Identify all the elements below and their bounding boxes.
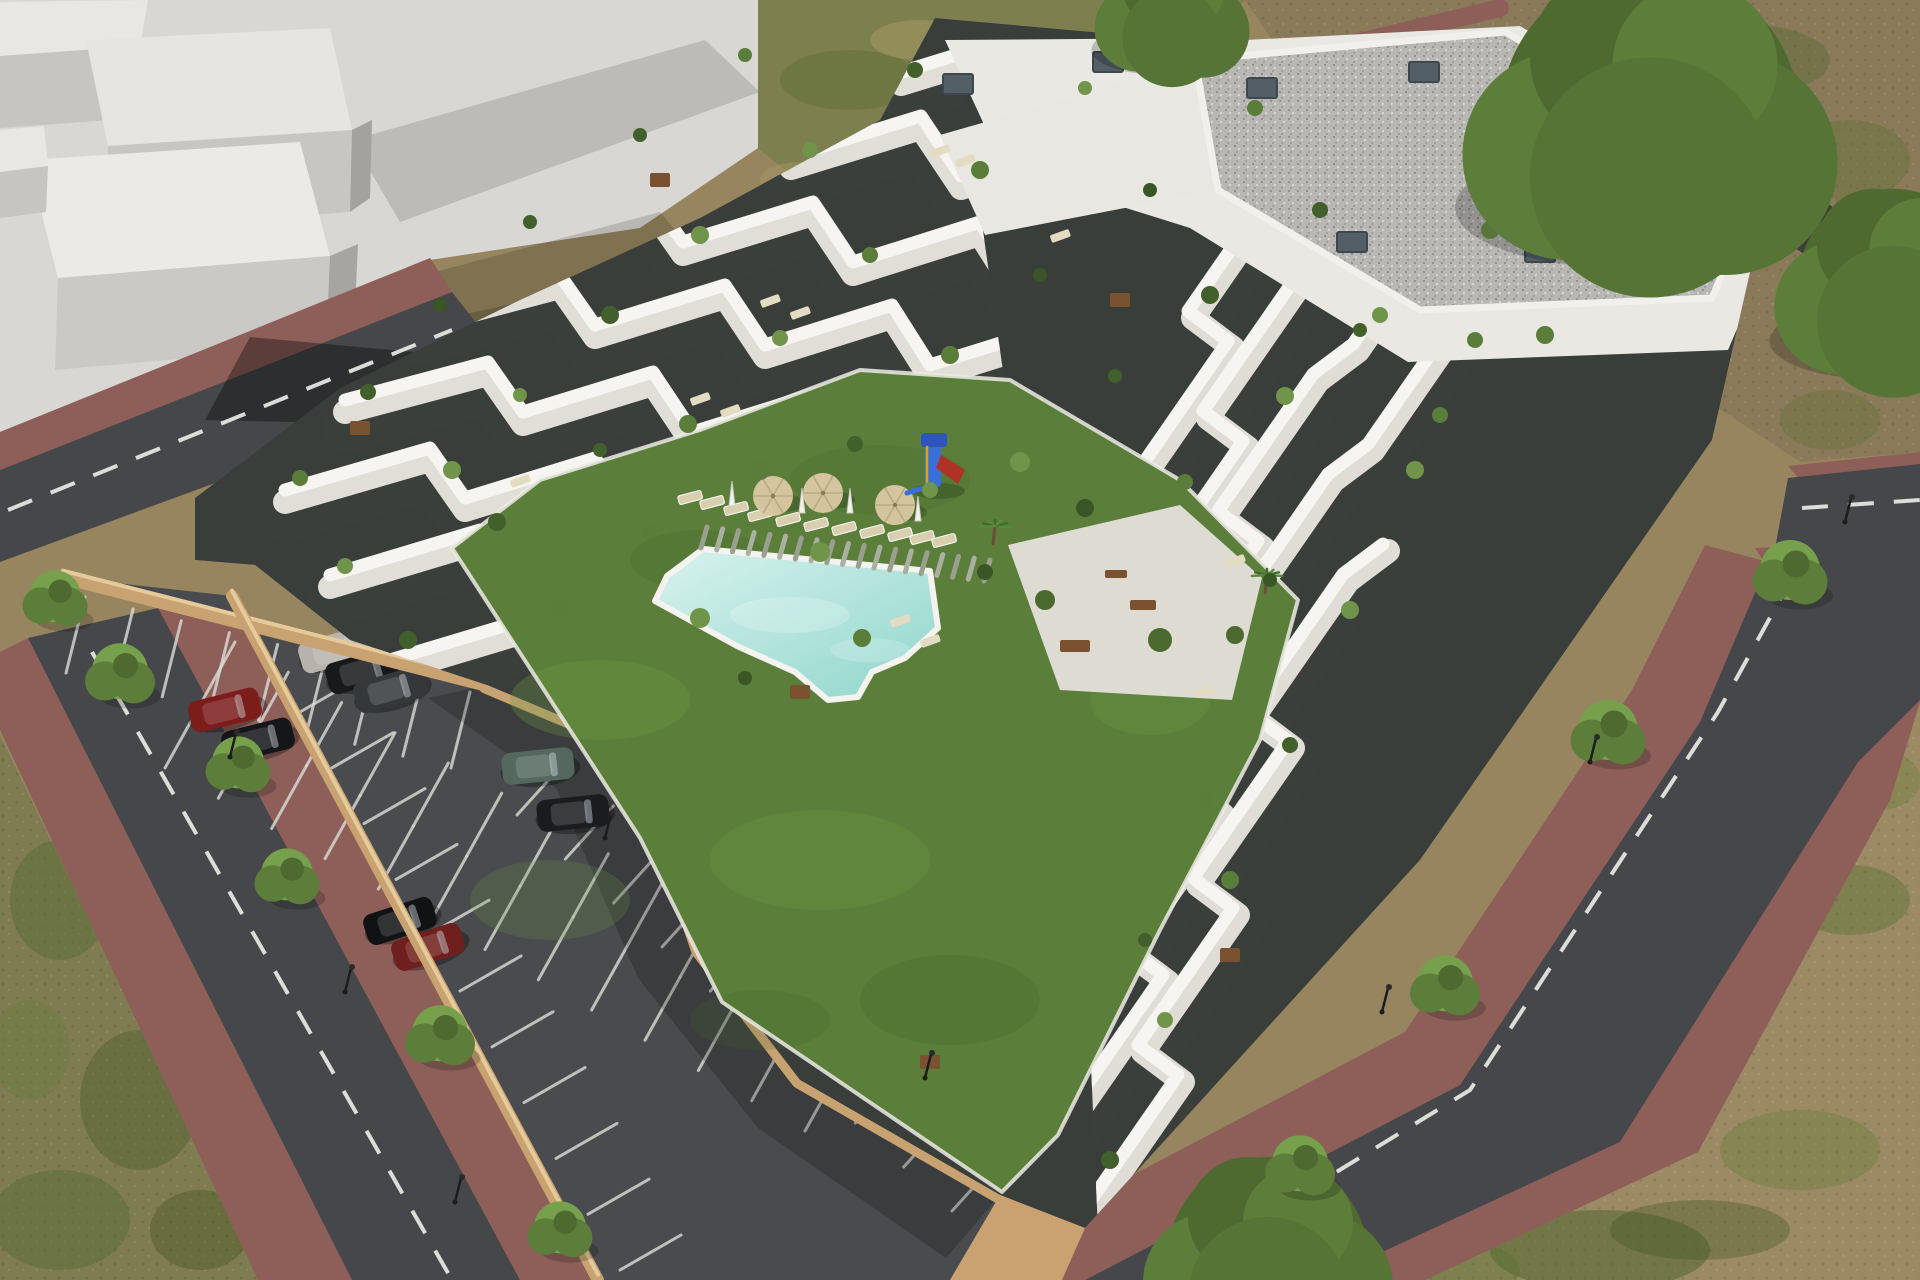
scrub-patch [1780,390,1880,450]
terrace-plant [922,482,938,498]
outdoor-table [1220,948,1240,962]
terrace-plant [1432,407,1448,423]
terrace-plant [1467,332,1483,348]
tree-canopy [433,1015,458,1040]
terrace-plant [1143,183,1157,197]
terrace-plant [593,443,607,457]
context-massing-block [0,126,48,218]
terrace-plant [643,525,657,539]
terrace-plant [971,161,989,179]
terrace-plant [1282,737,1298,753]
terrace-plant [488,513,506,531]
tree-canopy [281,858,304,881]
terrace-plant [853,629,871,647]
lamp-base [923,1076,928,1081]
terrace-plant [1078,81,1092,95]
terrace-plant [1341,601,1359,619]
tree-canopy [1293,1145,1318,1170]
parasol-hub [771,494,775,498]
terrace-plant [810,542,830,562]
terrace-plant [907,62,923,78]
terrace-plant [1010,452,1030,472]
scrub-patch [1720,1110,1880,1190]
tree-canopy [1438,965,1463,990]
bush [1226,626,1244,644]
terrace-plant [523,215,537,229]
palm-trunk [993,526,995,544]
terrace-plant [738,48,752,62]
outdoor-table [790,685,810,699]
terrace-plant [1201,286,1219,304]
car-roof [515,754,553,780]
parasol-hub [821,491,825,495]
wood-planter [1130,600,1156,610]
terrace-plant [690,608,710,628]
terrace-plant [337,558,353,574]
massing-block-face [350,120,372,212]
terrace-plant [1276,387,1294,405]
tree-canopy [1530,58,1770,298]
terrace-plant [1263,573,1277,587]
terrace-plant [601,306,619,324]
water-sparkle [730,597,850,633]
tree-canopy [113,653,138,678]
lawn-patch [710,810,930,910]
car-roof [550,801,588,827]
tree-canopy [232,746,255,769]
terrace-plant [633,128,647,142]
scene-canvas [0,0,1920,1280]
terrace-plant [443,461,461,479]
lamp-head [1594,734,1600,740]
roof-vent [1247,78,1277,98]
lamp-base [1380,1010,1385,1015]
terrace-plant [1221,871,1239,889]
massing-block-face [86,28,352,146]
massing-block-face [0,126,48,172]
terrace-plant [802,142,818,158]
lawn-patch [470,860,630,940]
lamp-head [609,810,615,816]
bush [1148,628,1172,652]
lamp-base [1588,760,1593,765]
terrace-plant [1076,499,1094,517]
terrace-plant [862,247,878,263]
terrace-plant [847,436,863,452]
terrace-plant [977,564,993,580]
palm-frond [980,526,995,527]
lamp-head [1849,494,1855,500]
terrace-plant [513,388,527,402]
roof-vent [943,74,973,94]
terrace-plant [1108,369,1122,383]
terrace-plant [552,600,568,616]
lawn-patch [690,990,830,1050]
lamp-base [603,836,608,841]
terrace-plant [1247,100,1263,116]
lawn-patch [860,955,1040,1045]
terrace-plant [1372,307,1388,323]
wood-planter [1060,640,1090,652]
lamp-head [929,1050,935,1056]
lamp-head [1386,984,1392,990]
lamp-base [453,1200,458,1205]
terrace-plant [1101,1151,1119,1169]
terrace-plant [738,671,752,685]
tree-canopy [1601,711,1628,738]
parasol-hub [893,503,897,507]
terrace-plant [1353,323,1367,337]
terrace-plant [679,415,697,433]
terrace-plant [433,298,447,312]
terrace-plant [1312,202,1328,218]
roof-vent [1337,232,1367,252]
terrace-plant [1406,461,1424,479]
lamp-head [234,729,240,735]
terrace-plant [292,470,308,486]
scrub-patch [1610,1200,1790,1260]
terrace-plant [1157,1012,1173,1028]
terrace-plant [941,346,959,364]
terrace-plant [399,631,417,649]
lawn-patch [510,660,690,740]
wood-planter [1105,570,1127,578]
terrace-plant [1177,474,1193,490]
terrace-plant [1138,933,1152,947]
lamp-head [349,964,355,970]
roof-vent [1409,62,1439,82]
terrace-plant [1536,326,1554,344]
bush [1035,590,1055,610]
play-canopy [921,433,947,447]
outdoor-table [350,421,370,435]
lamp-base [343,990,348,995]
massing-block-face [0,166,48,218]
terrace-plant [691,226,709,244]
terrace-plant [1197,792,1213,808]
aerial-render-scene [0,0,1920,1280]
terrace-plant [750,460,770,480]
terrace-plant [772,330,788,346]
tree-canopy [49,580,72,603]
terrace-plant [360,384,376,400]
tree-canopy [554,1211,577,1234]
terrace-plant [1033,268,1047,282]
massing-block-face [28,142,330,278]
lamp-base [228,755,233,760]
lamp-head [459,1174,465,1180]
outdoor-table [650,173,670,187]
outdoor-table [1110,293,1130,307]
lamp-base [1843,520,1848,525]
tree-canopy [1783,551,1810,578]
